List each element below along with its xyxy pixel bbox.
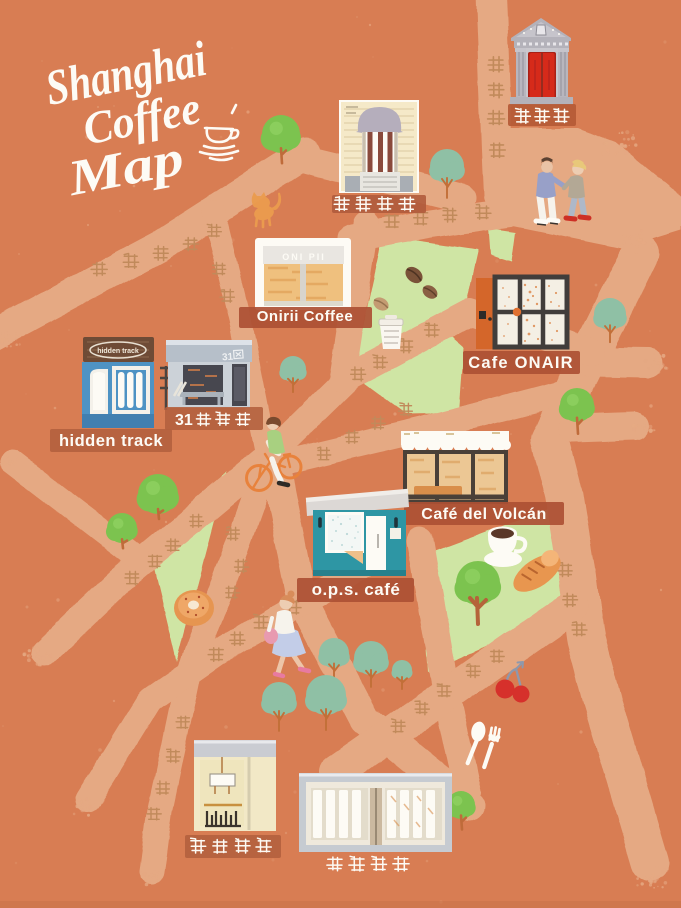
svg-text:Onirii Coffee: Onirii Coffee bbox=[257, 308, 354, 325]
svg-text:31: 31 bbox=[222, 352, 234, 364]
svg-text:Café del Volcán: Café del Volcán bbox=[421, 506, 546, 523]
svg-text:o.p.s. café: o.p.s. café bbox=[312, 580, 401, 599]
svg-text:hidden track: hidden track bbox=[97, 348, 139, 355]
svg-text:ONI PII: ONI PII bbox=[282, 252, 326, 262]
svg-text:hidden track: hidden track bbox=[59, 432, 163, 450]
svg-text:Cafe ONAIR: Cafe ONAIR bbox=[468, 354, 574, 372]
svg-text:31: 31 bbox=[175, 412, 193, 429]
